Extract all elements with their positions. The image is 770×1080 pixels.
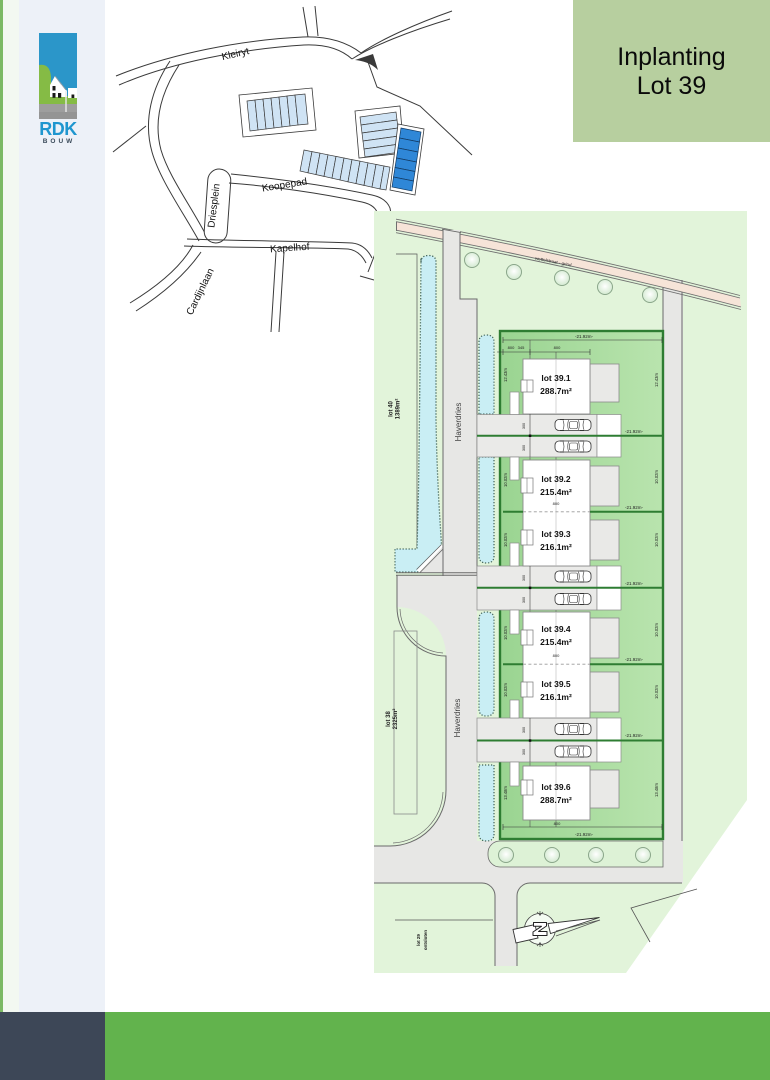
svg-text:lot 39.2: lot 39.2 <box>541 474 571 484</box>
svg-text:300: 300 <box>522 727 526 733</box>
svg-text:300: 300 <box>522 597 526 603</box>
svg-text:10.02m: 10.02m <box>503 683 508 697</box>
svg-text:lot 39.6: lot 39.6 <box>541 782 571 792</box>
svg-text:lot 39.4: lot 39.4 <box>541 624 571 634</box>
svg-text:-21.92m-: -21.92m- <box>625 505 644 510</box>
svg-text:300: 300 <box>522 575 526 581</box>
svg-text:12.43m: 12.43m <box>654 373 659 387</box>
svg-text:ontsloten: ontsloten <box>423 930 428 950</box>
svg-text:Haverdries: Haverdries <box>454 403 463 442</box>
svg-text:215.4m²: 215.4m² <box>540 637 572 647</box>
svg-text:lot 38: lot 38 <box>386 711 392 727</box>
svg-text:-21.92m-: -21.92m- <box>625 581 644 586</box>
svg-text:288.7m²: 288.7m² <box>540 386 572 396</box>
svg-text:lot 40: lot 40 <box>389 401 395 417</box>
svg-text:300: 300 <box>522 445 526 451</box>
svg-text:lot 39.3: lot 39.3 <box>541 529 571 539</box>
svg-text:800: 800 <box>508 345 515 350</box>
svg-text:-21.92m-: -21.92m- <box>575 832 594 837</box>
svg-text:215.4m²: 215.4m² <box>540 487 572 497</box>
svg-text:1389m²: 1389m² <box>395 399 402 420</box>
svg-text:-21.92m-: -21.92m- <box>625 733 644 738</box>
svg-text:13.48m: 13.48m <box>654 783 659 797</box>
svg-text:345: 345 <box>518 345 525 350</box>
svg-text:-21.92m-: -21.92m- <box>575 334 594 339</box>
svg-text:12.43m: 12.43m <box>503 368 508 382</box>
svg-text:800: 800 <box>553 501 560 506</box>
svg-text:13.48m: 13.48m <box>503 786 508 800</box>
svg-text:10.02m: 10.02m <box>503 626 508 640</box>
svg-text:10.02m: 10.02m <box>503 473 508 487</box>
svg-text:-21.92m-: -21.92m- <box>625 429 644 434</box>
svg-text:300: 300 <box>522 423 526 429</box>
svg-text:10.02m: 10.02m <box>503 533 508 547</box>
svg-text:-21.92m-: -21.92m- <box>625 657 644 662</box>
svg-text:10.02m: 10.02m <box>654 470 659 484</box>
svg-text:lot 39.1: lot 39.1 <box>541 373 571 383</box>
svg-text:300: 300 <box>522 749 526 755</box>
svg-text:288.7m²: 288.7m² <box>540 795 572 805</box>
svg-text:2325m²: 2325m² <box>392 709 399 730</box>
svg-text:216.1m²: 216.1m² <box>540 542 572 552</box>
svg-text:10.02m: 10.02m <box>654 533 659 547</box>
svg-text:216.1m²: 216.1m² <box>540 692 572 702</box>
svg-text:800: 800 <box>554 345 561 350</box>
svg-text:Haverdries: Haverdries <box>453 699 462 738</box>
svg-text:lot 39.5: lot 39.5 <box>541 679 571 689</box>
svg-text:800: 800 <box>554 821 561 826</box>
svg-text:lot 29: lot 29 <box>416 934 421 946</box>
svg-text:10.02m: 10.02m <box>654 623 659 637</box>
svg-text:800: 800 <box>553 653 560 658</box>
svg-text:10.02m: 10.02m <box>654 685 659 699</box>
